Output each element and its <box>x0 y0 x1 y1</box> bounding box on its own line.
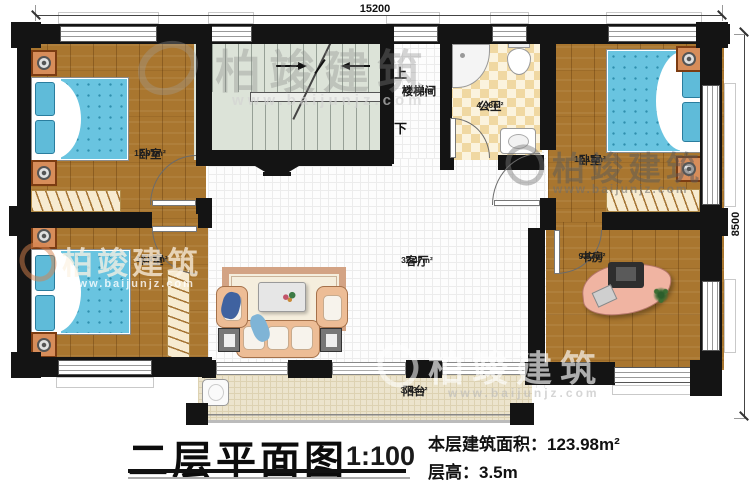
side-table <box>218 328 240 352</box>
wall <box>202 360 216 378</box>
wall <box>288 360 332 378</box>
watermark-url: www.baijunjz.com <box>448 386 600 400</box>
column <box>11 22 41 48</box>
nightstand <box>31 50 57 76</box>
title-rule-thin <box>128 477 410 479</box>
plant-icon <box>652 286 670 304</box>
door-leaf <box>152 200 196 206</box>
balcony-railing <box>200 414 532 423</box>
floor-area-label: 本层建筑面积： <box>428 435 547 454</box>
window <box>58 360 152 375</box>
floor-height-value: 3.5m <box>479 463 518 482</box>
side-table <box>320 328 342 352</box>
title-rule <box>128 469 406 473</box>
window-sill <box>490 12 529 24</box>
floor-area-value: 123.98m² <box>547 435 620 454</box>
watermark-url: www.baijunjz.com <box>232 92 425 109</box>
window <box>702 281 720 351</box>
sofa-cushion <box>267 326 289 350</box>
wall <box>196 150 392 166</box>
window <box>702 85 720 205</box>
watermark-url: www.baijunjz.com <box>553 182 689 196</box>
window-sill <box>208 12 254 24</box>
stairs-down-label: 下 <box>394 118 407 137</box>
window <box>60 26 157 42</box>
lamp-icon <box>682 52 696 66</box>
window <box>608 26 700 42</box>
pillow <box>35 120 55 154</box>
tv-stand <box>263 172 291 176</box>
dimension-line-top <box>35 15 722 16</box>
wall <box>196 24 212 150</box>
wall <box>17 212 152 228</box>
door-leaf <box>554 230 560 274</box>
window-sill <box>612 385 694 395</box>
window-sill <box>724 83 736 207</box>
pillow <box>35 295 55 331</box>
armchair-cushion <box>323 295 342 321</box>
lamp-icon <box>37 229 51 243</box>
window-sill <box>606 12 702 24</box>
computer-monitor <box>608 262 644 288</box>
shower-drain-icon <box>460 53 465 58</box>
column <box>186 403 208 425</box>
door-leaf <box>450 118 456 158</box>
balcony-door <box>216 362 288 375</box>
window <box>492 26 527 42</box>
wall <box>540 24 556 150</box>
watermark-brand: 柏竣建筑 <box>62 238 202 283</box>
floor-plan: 卧室 12.91m² 楼梯间 12.84m² 公卫 4.98m² 卧室 12.1… <box>0 0 750 487</box>
sofa-cushion <box>291 326 313 350</box>
wall <box>602 212 700 230</box>
pillow <box>35 82 55 116</box>
door-leaf <box>152 226 197 232</box>
floor-height-label: 层高： <box>428 463 479 482</box>
watermark-url: www.baijunjz.com <box>68 278 195 290</box>
column <box>700 208 728 236</box>
wall <box>198 212 212 228</box>
floor-area-row: 本层建筑面积：123.98m² <box>428 430 620 455</box>
flowers-icon <box>281 290 297 303</box>
dimension-top-value: 15200 <box>350 3 400 15</box>
armchair <box>316 286 348 328</box>
door-leaf <box>494 200 540 206</box>
lamp-icon <box>37 338 51 352</box>
wall <box>17 24 31 378</box>
sofa <box>236 320 320 358</box>
pillow <box>682 102 702 142</box>
lamp-icon <box>37 166 51 180</box>
washing-machine-door <box>208 384 224 401</box>
floor-height-row: 层高：3.5m <box>428 458 518 483</box>
column <box>696 22 728 48</box>
plan-scale: 1:100 <box>346 441 415 472</box>
window-sill <box>56 377 154 388</box>
coffee-table <box>258 282 306 312</box>
monitor-screen <box>616 267 636 281</box>
window-sill <box>724 279 736 353</box>
dimension-right-value: 8500 <box>730 196 742 252</box>
washing-machine <box>202 379 229 406</box>
wall <box>540 198 556 230</box>
nightstand <box>676 46 702 72</box>
column <box>690 360 722 396</box>
nightstand <box>31 160 57 186</box>
window-sill <box>58 12 159 24</box>
column <box>510 403 534 425</box>
window <box>614 367 692 383</box>
watermark-brand: 柏竣建筑 <box>428 340 604 392</box>
side-table-top <box>326 334 337 347</box>
lamp-icon <box>37 56 51 70</box>
wardrobe <box>31 190 121 212</box>
side-table-top <box>224 334 235 347</box>
dimension-line-right <box>744 33 745 419</box>
